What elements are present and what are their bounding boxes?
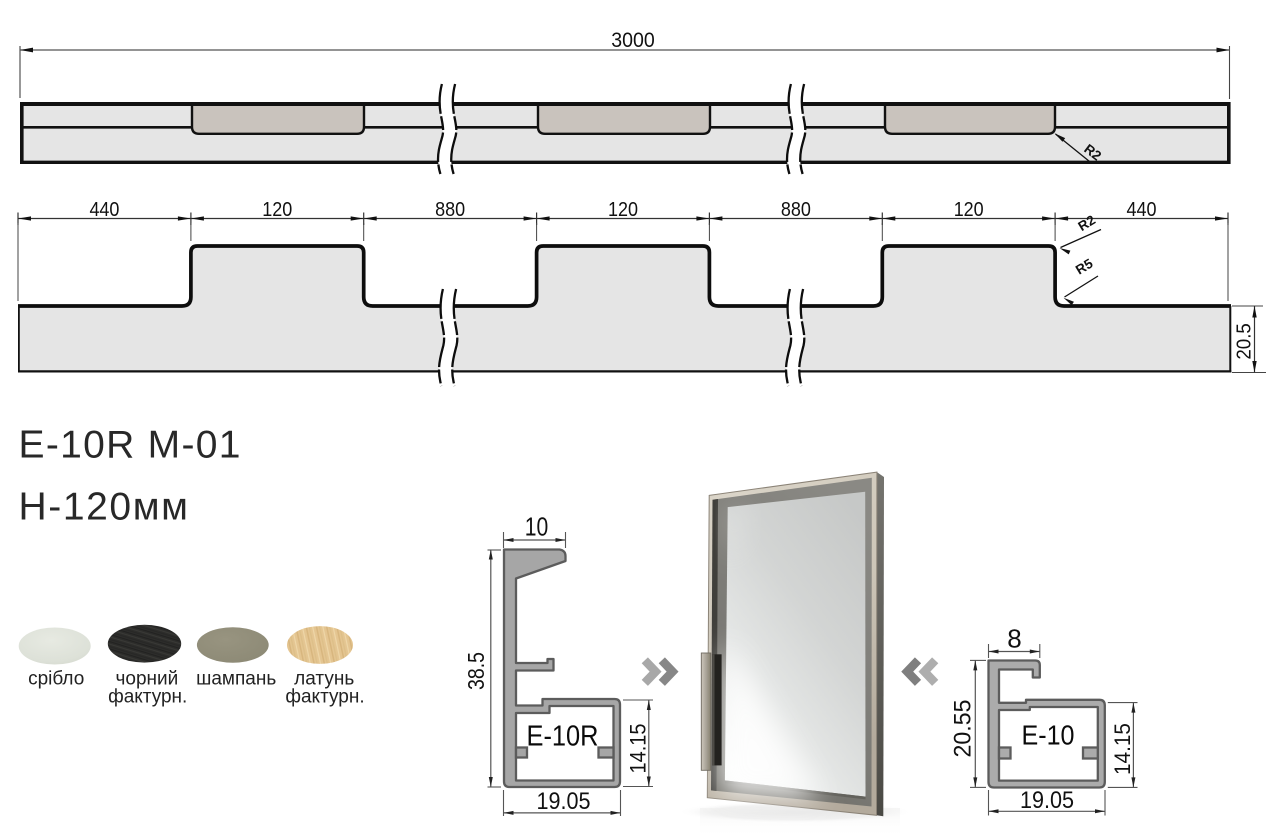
svg-text:19.05: 19.05 (537, 788, 591, 815)
svg-text:14.15: 14.15 (626, 724, 651, 774)
svg-text:880: 880 (781, 199, 811, 221)
svg-text:фактурн.: фактурн. (285, 687, 364, 708)
svg-text:120: 120 (954, 199, 984, 221)
svg-text:3000: 3000 (611, 29, 655, 52)
svg-text:H-120мм: H-120мм (19, 486, 190, 529)
svg-text:38.5: 38.5 (463, 652, 489, 690)
svg-text:8: 8 (1007, 624, 1021, 654)
svg-text:880: 880 (435, 199, 465, 221)
svg-text:20.5: 20.5 (1233, 323, 1256, 360)
svg-text:20.55: 20.55 (950, 700, 977, 758)
svg-text:срібло: срібло (28, 669, 84, 690)
svg-text:E-10: E-10 (1022, 719, 1075, 750)
svg-text:фактурн.: фактурн. (108, 687, 187, 708)
svg-text:440: 440 (89, 199, 119, 221)
svg-text:120: 120 (262, 199, 292, 221)
svg-text:шампань: шампань (196, 669, 276, 690)
svg-text:10: 10 (525, 512, 549, 542)
svg-text:19.05: 19.05 (1020, 787, 1074, 814)
svg-text:120: 120 (608, 199, 638, 221)
svg-text:14.15: 14.15 (1110, 723, 1135, 775)
svg-text:E-10R: E-10R (527, 721, 599, 753)
svg-text:440: 440 (1127, 199, 1157, 221)
svg-text:E-10R M-01: E-10R M-01 (19, 424, 242, 467)
